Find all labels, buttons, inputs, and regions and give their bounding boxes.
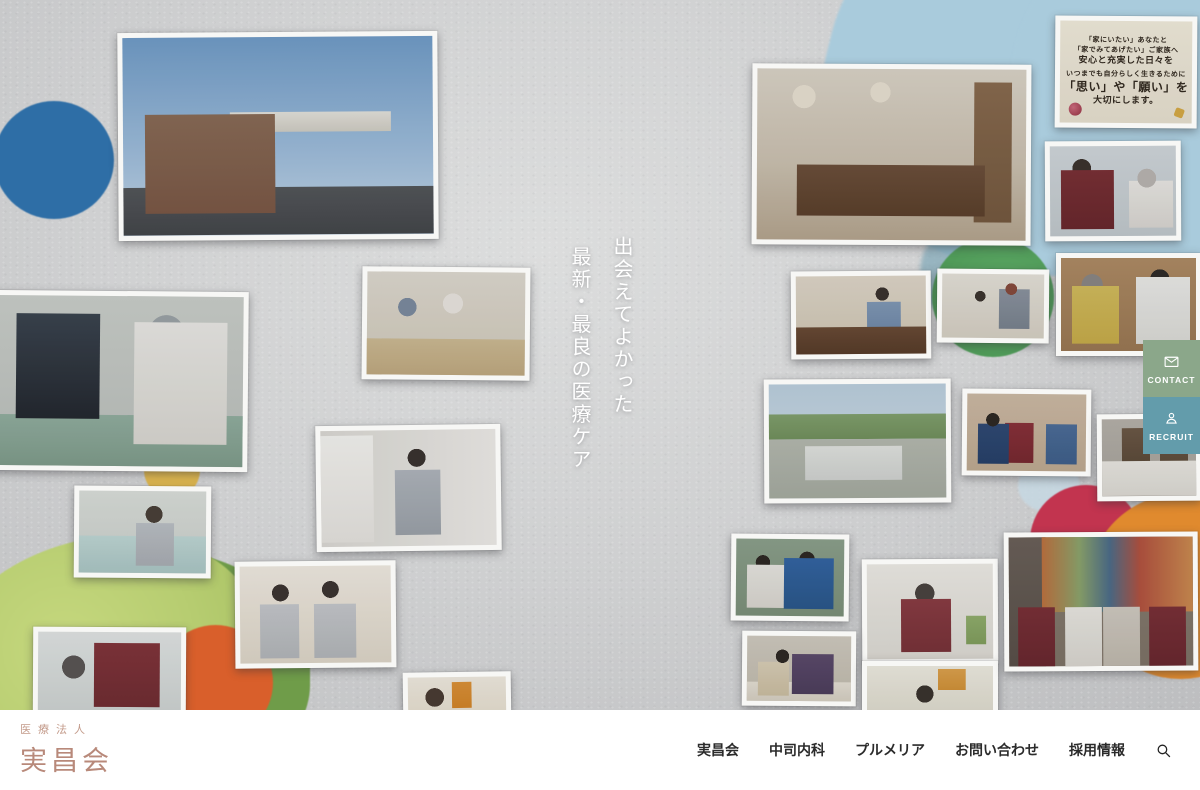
photo-daycare-activity-room bbox=[752, 63, 1032, 245]
nav-item-jisshokai[interactable]: 実昌会 bbox=[697, 740, 739, 760]
side-button-group: CONTACT RECRUIT bbox=[1143, 340, 1200, 454]
logo-name: 実昌会 bbox=[20, 739, 113, 778]
watercolor-blue-circle-left bbox=[0, 101, 114, 219]
nav-item-contact[interactable]: お問い合わせ bbox=[955, 740, 1039, 760]
headline-line-1: 出会えてよかった bbox=[608, 236, 636, 471]
photo-caregiver-assisting bbox=[937, 269, 1050, 344]
headline-line-2: 最新・最良の医療ケア bbox=[566, 246, 594, 471]
gold-ornament bbox=[1173, 107, 1185, 119]
calligraphy-line: 「思い」や「願い」を bbox=[1063, 79, 1188, 96]
recruit-button[interactable]: RECRUIT bbox=[1143, 397, 1200, 454]
footer-nav: 実昌会 中司内科 プルメリア お問い合わせ 採用情報 bbox=[697, 710, 1172, 790]
photo-staff-with-clipboard bbox=[235, 560, 397, 668]
photo-staff-writing-notes bbox=[742, 631, 857, 707]
photo-clinic-building-exterior bbox=[117, 31, 438, 241]
photo-staff-with-posters bbox=[403, 671, 512, 710]
photo-nurse-with-elderly-patient bbox=[33, 627, 186, 710]
recruit-button-label: RECRUIT bbox=[1149, 432, 1194, 442]
photo-two-staff-smiling bbox=[731, 533, 850, 621]
site-logo[interactable]: 医療法人 実昌会 bbox=[20, 721, 113, 778]
logo-corporate-type: 医療法人 bbox=[20, 721, 113, 737]
photo-aerial-town-view bbox=[764, 379, 952, 504]
contact-button-label: CONTACT bbox=[1148, 375, 1196, 385]
photo-nurse-bedside-visit bbox=[1045, 141, 1182, 242]
landing-page: 「家にいたい」あなたと 「家でみてあげたい」ご家族へ 安心と充実した日々を いつ… bbox=[0, 0, 1200, 790]
nav-item-nakatsukasa-naika[interactable]: 中司内科 bbox=[769, 740, 825, 760]
photo-doctor-xray-exam bbox=[0, 290, 249, 472]
calligraphy-line: 大切にします。 bbox=[1093, 95, 1159, 109]
photo-staff-hallway bbox=[315, 424, 502, 552]
photo-reception-waiting-room bbox=[362, 266, 531, 380]
nav-item-recruit-info[interactable]: 採用情報 bbox=[1069, 740, 1125, 760]
person-icon bbox=[1163, 410, 1180, 427]
photo-staff-red-polo-desk bbox=[862, 559, 999, 665]
photo-calligraphy-poster: 「家にいたい」あなたと 「家でみてあげたい」ご家族へ 安心と充実した日々を いつ… bbox=[1055, 16, 1198, 129]
envelope-icon bbox=[1163, 353, 1180, 370]
magnifier-icon bbox=[1155, 742, 1172, 759]
photo-meal-preparation bbox=[791, 271, 932, 360]
photo-nurse-at-desk bbox=[74, 486, 212, 579]
hero-photo-collage: 「家にいたい」あなたと 「家でみてあげたい」ご家族へ 安心と充実した日々を いつ… bbox=[0, 0, 1200, 710]
contact-button[interactable]: CONTACT bbox=[1143, 340, 1200, 397]
calligraphy-line: 「家にいたい」あなたと bbox=[1085, 35, 1168, 46]
calligraphy-line: 「家でみてあげたい」ご家族へ bbox=[1074, 45, 1179, 56]
photo-staff-group-seated bbox=[962, 388, 1092, 476]
search-button[interactable] bbox=[1155, 742, 1172, 759]
hero-headline: 出会えてよかった 最新・最良の医療ケア bbox=[566, 236, 636, 471]
flower-decoration bbox=[1069, 103, 1082, 116]
nav-item-plumeria[interactable]: プルメリア bbox=[855, 740, 925, 760]
photo-staff-group-mural bbox=[1004, 531, 1199, 671]
photo-pharmacy-shelves bbox=[862, 661, 998, 710]
calligraphy-line: 安心と充実した日々を bbox=[1079, 55, 1174, 69]
footer-bar: 医療法人 実昌会 実昌会 中司内科 プルメリア お問い合わせ 採用情報 bbox=[0, 710, 1200, 790]
